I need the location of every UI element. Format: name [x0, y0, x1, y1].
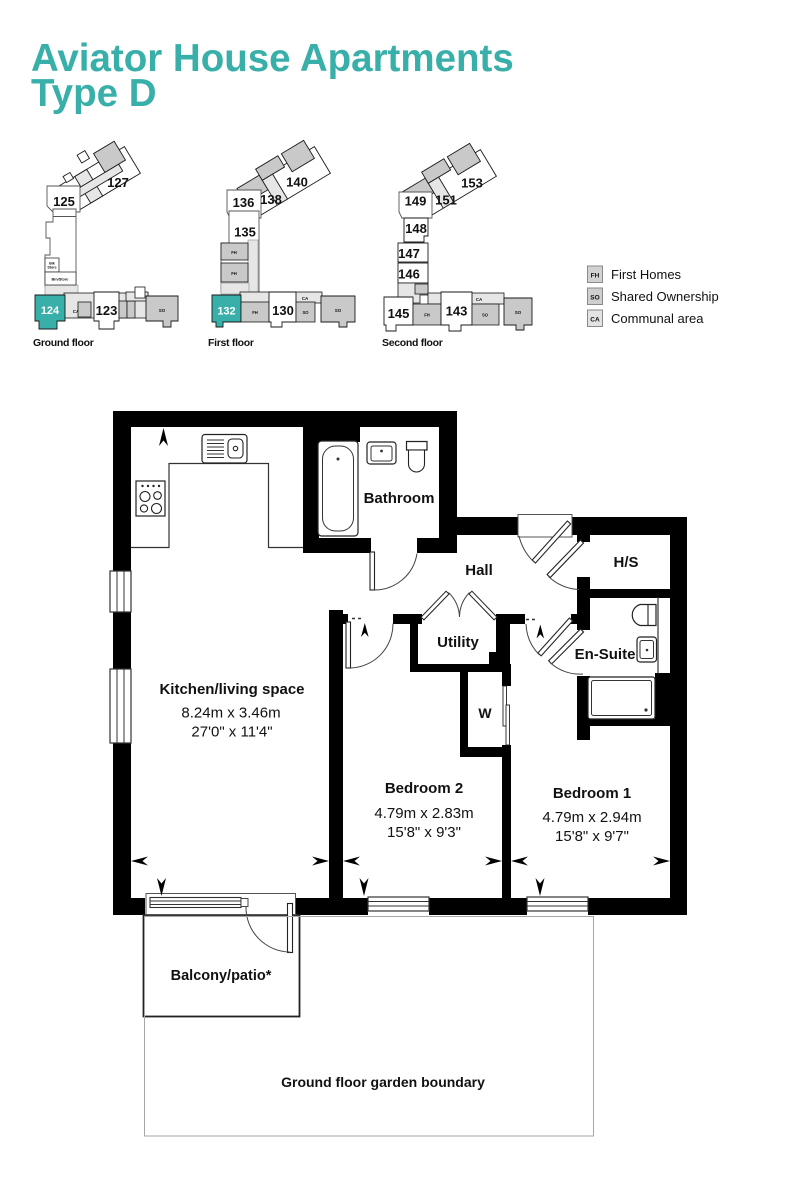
- svg-text:143: 143: [446, 304, 468, 319]
- svg-text:Second floor: Second floor: [382, 337, 443, 349]
- svg-text:FH: FH: [252, 310, 258, 315]
- svg-text:125: 125: [53, 194, 75, 209]
- svg-text:CA: CA: [302, 296, 309, 301]
- svg-text:Hall: Hall: [465, 562, 493, 579]
- svg-text:FH: FH: [591, 273, 600, 280]
- svg-text:Bin/Store: Bin/Store: [52, 278, 69, 282]
- svg-text:Bedroom 1: Bedroom 1: [553, 785, 631, 802]
- svg-text:FH: FH: [424, 313, 430, 318]
- svg-text:Bedroom 2: Bedroom 2: [385, 780, 463, 797]
- svg-text:Store: Store: [47, 266, 56, 270]
- svg-text:First floor: First floor: [208, 337, 254, 349]
- svg-text:SO: SO: [335, 308, 342, 313]
- svg-text:145: 145: [388, 306, 410, 321]
- svg-text:SO: SO: [482, 313, 489, 318]
- svg-text:First Homes: First Homes: [611, 267, 682, 282]
- svg-text:SO: SO: [590, 295, 599, 302]
- svg-text:SO: SO: [302, 310, 309, 315]
- svg-text:Balcony/patio*: Balcony/patio*: [171, 968, 272, 984]
- svg-text:4.79m x 2.83m: 4.79m x 2.83m: [374, 805, 473, 822]
- svg-text:123: 123: [96, 303, 118, 318]
- svg-text:151: 151: [435, 193, 457, 208]
- svg-text:SO: SO: [159, 308, 166, 313]
- svg-text:Ground floor garden boundary: Ground floor garden boundary: [281, 1074, 485, 1090]
- svg-text:27'0" x 11'4": 27'0" x 11'4": [191, 724, 272, 741]
- svg-text:135: 135: [234, 225, 256, 240]
- svg-text:FH: FH: [231, 250, 237, 255]
- svg-text:En-Suite: En-Suite: [575, 646, 636, 663]
- svg-text:Bathroom: Bathroom: [364, 490, 435, 507]
- svg-text:127: 127: [107, 175, 129, 190]
- svg-text:147: 147: [398, 246, 420, 261]
- svg-text:132: 132: [217, 306, 235, 318]
- svg-text:8.24m x 3.46m: 8.24m x 3.46m: [181, 705, 280, 722]
- svg-text:138: 138: [260, 192, 282, 207]
- svg-text:W: W: [478, 705, 492, 721]
- svg-text:140: 140: [286, 175, 308, 190]
- svg-text:136: 136: [233, 195, 255, 210]
- svg-text:124: 124: [41, 305, 60, 317]
- svg-text:CA: CA: [476, 297, 483, 302]
- svg-text:FH: FH: [231, 271, 237, 276]
- svg-text:CA: CA: [590, 317, 600, 324]
- svg-text:Ground floor: Ground floor: [33, 337, 94, 349]
- svg-text:Communal area: Communal area: [611, 311, 704, 326]
- svg-text:15'8" x 9'7": 15'8" x 9'7": [555, 828, 629, 845]
- svg-text:Shared Ownership: Shared Ownership: [611, 289, 719, 304]
- svg-text:Kitchen/living space: Kitchen/living space: [159, 681, 304, 698]
- svg-text:149: 149: [405, 194, 427, 209]
- svg-text:153: 153: [461, 176, 483, 191]
- svg-text:SO: SO: [515, 310, 522, 315]
- svg-text:15'8" x 9'3": 15'8" x 9'3": [387, 824, 461, 841]
- svg-text:H/S: H/S: [613, 554, 638, 571]
- svg-text:148: 148: [405, 221, 427, 236]
- svg-text:4.79m x 2.94m: 4.79m x 2.94m: [542, 809, 641, 826]
- svg-text:Utility: Utility: [437, 634, 479, 651]
- svg-text:130: 130: [272, 303, 294, 318]
- svg-text:146: 146: [398, 267, 420, 282]
